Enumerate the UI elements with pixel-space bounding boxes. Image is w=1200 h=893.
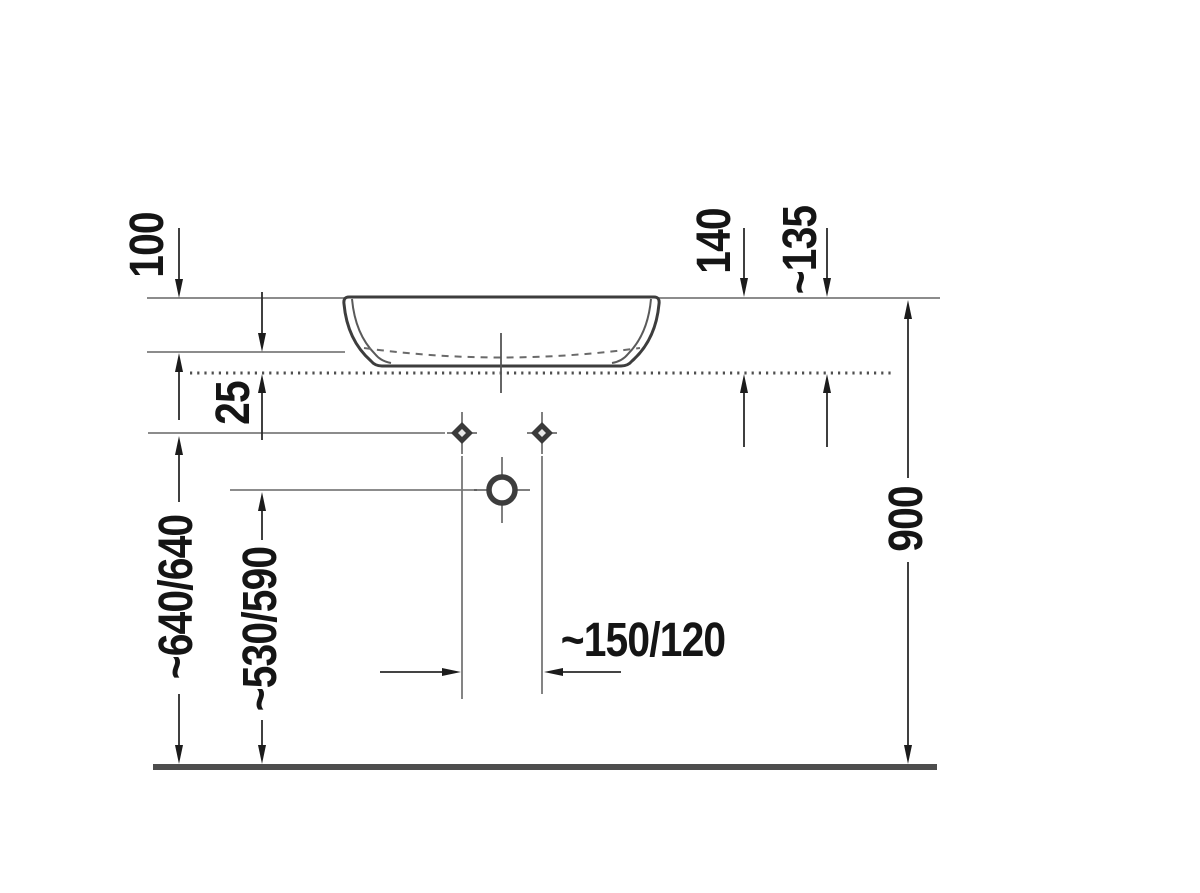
dim-530-arrow-down <box>258 745 266 764</box>
dim-150-arrow-right <box>442 668 461 676</box>
dim-label-530-590: ~530/590 <box>237 547 285 712</box>
dim-900-arrow-down <box>904 745 912 764</box>
drawing-graphics <box>0 0 1200 893</box>
dim-530-arrow-up <box>258 492 266 511</box>
dim-25-arrow-down <box>258 333 266 352</box>
dim-640-arrow-down <box>175 745 183 764</box>
dim-100-arrow-up <box>175 353 183 372</box>
dim-140-arrow-up <box>740 374 748 393</box>
dim-label-135: ~135 <box>777 206 825 295</box>
dim-150-arrow-left <box>544 668 563 676</box>
dim-135-arrow-up <box>823 374 831 393</box>
faucet-hole-symbols <box>447 412 557 699</box>
dim-100-arrow-down <box>175 279 183 298</box>
dim-label-25: 25 <box>210 381 258 425</box>
washbasin-profile <box>344 297 659 393</box>
dim-label-640-640: ~640/640 <box>153 515 201 680</box>
dim-label-150-120: ~150/120 <box>561 617 726 665</box>
drain-circle-icon <box>489 477 515 503</box>
dim-640-arrow-up <box>175 436 183 455</box>
drain-symbol <box>474 457 530 523</box>
dim-label-140: 140 <box>691 208 739 274</box>
dim-140-arrow-down <box>740 278 748 297</box>
dim-label-900: 900 <box>883 486 931 552</box>
dim-900-arrow-up <box>904 300 912 319</box>
technical-drawing-canvas: 100 25 140 ~135 ~640/640 ~530/590 900 ~1… <box>0 0 1200 893</box>
dim-label-100: 100 <box>124 212 172 278</box>
